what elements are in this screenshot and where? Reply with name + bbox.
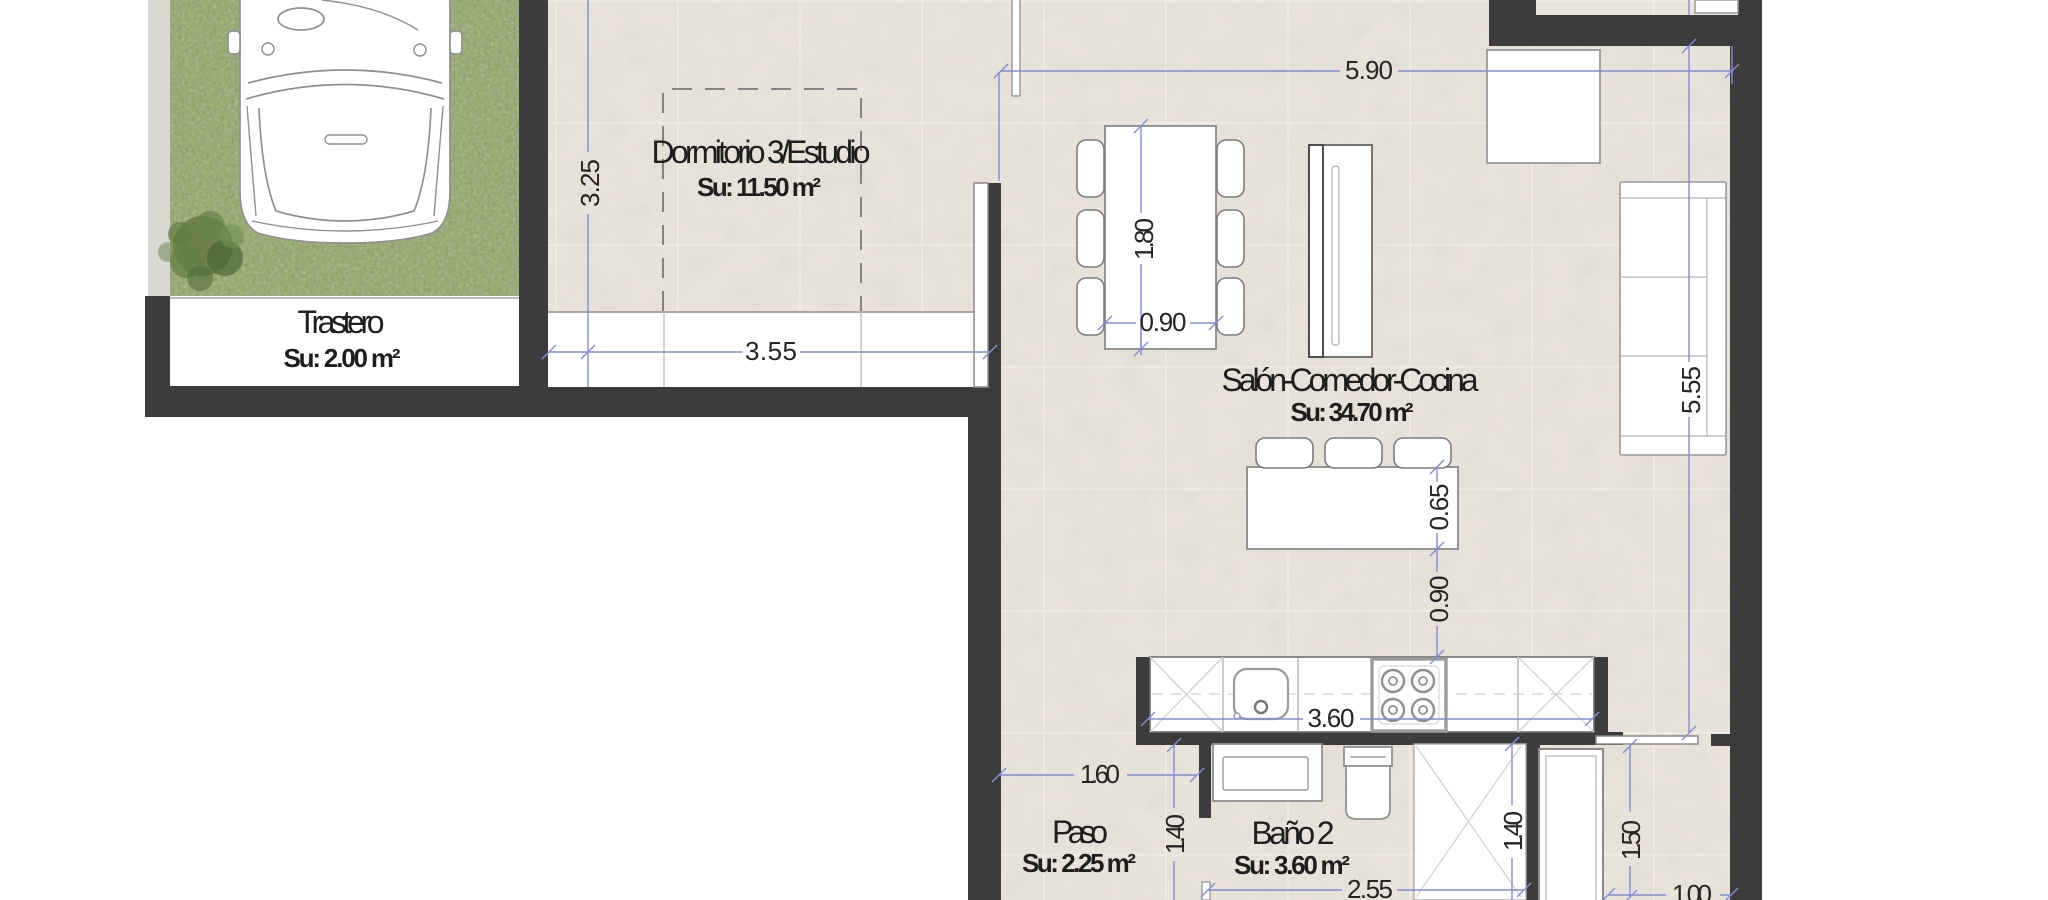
svg-text:1.60: 1.60 [1080, 759, 1120, 789]
svg-text:Baño 2: Baño 2 [1252, 815, 1335, 851]
svg-text:1.40: 1.40 [1160, 814, 1190, 854]
svg-text:2.55: 2.55 [1347, 874, 1393, 900]
svg-text:Dormitorio 3/Estudio: Dormitorio 3/Estudio [652, 134, 871, 170]
svg-text:5.55: 5.55 [1676, 366, 1706, 414]
svg-text:Su: 2.25 m²: Su: 2.25 m² [1022, 848, 1136, 878]
svg-text:5.90: 5.90 [1345, 55, 1393, 85]
svg-text:1.00: 1.00 [1672, 879, 1712, 900]
svg-text:1.40: 1.40 [1498, 811, 1528, 851]
svg-text:Trastero: Trastero [298, 304, 385, 340]
svg-text:3.55: 3.55 [745, 336, 797, 366]
svg-text:0.90: 0.90 [1424, 576, 1454, 623]
svg-text:1.80: 1.80 [1129, 218, 1159, 260]
svg-text:1.50: 1.50 [1616, 820, 1646, 860]
svg-text:Salón-Comedor-Cocina: Salón-Comedor-Cocina [1222, 362, 1479, 398]
svg-text:3.60: 3.60 [1308, 703, 1355, 733]
svg-text:0.65: 0.65 [1424, 484, 1454, 531]
svg-text:3.25: 3.25 [575, 159, 605, 207]
svg-text:Paso: Paso [1052, 814, 1108, 850]
svg-text:Su: 3.60 m²: Su: 3.60 m² [1234, 850, 1350, 880]
svg-text:Su: 2.00 m²: Su: 2.00 m² [284, 343, 401, 373]
svg-text:Su: 34.70 m²: Su: 34.70 m² [1291, 397, 1414, 427]
svg-text:0.90: 0.90 [1140, 307, 1187, 337]
svg-text:Su: 11.50 m²: Su: 11.50 m² [697, 172, 821, 202]
